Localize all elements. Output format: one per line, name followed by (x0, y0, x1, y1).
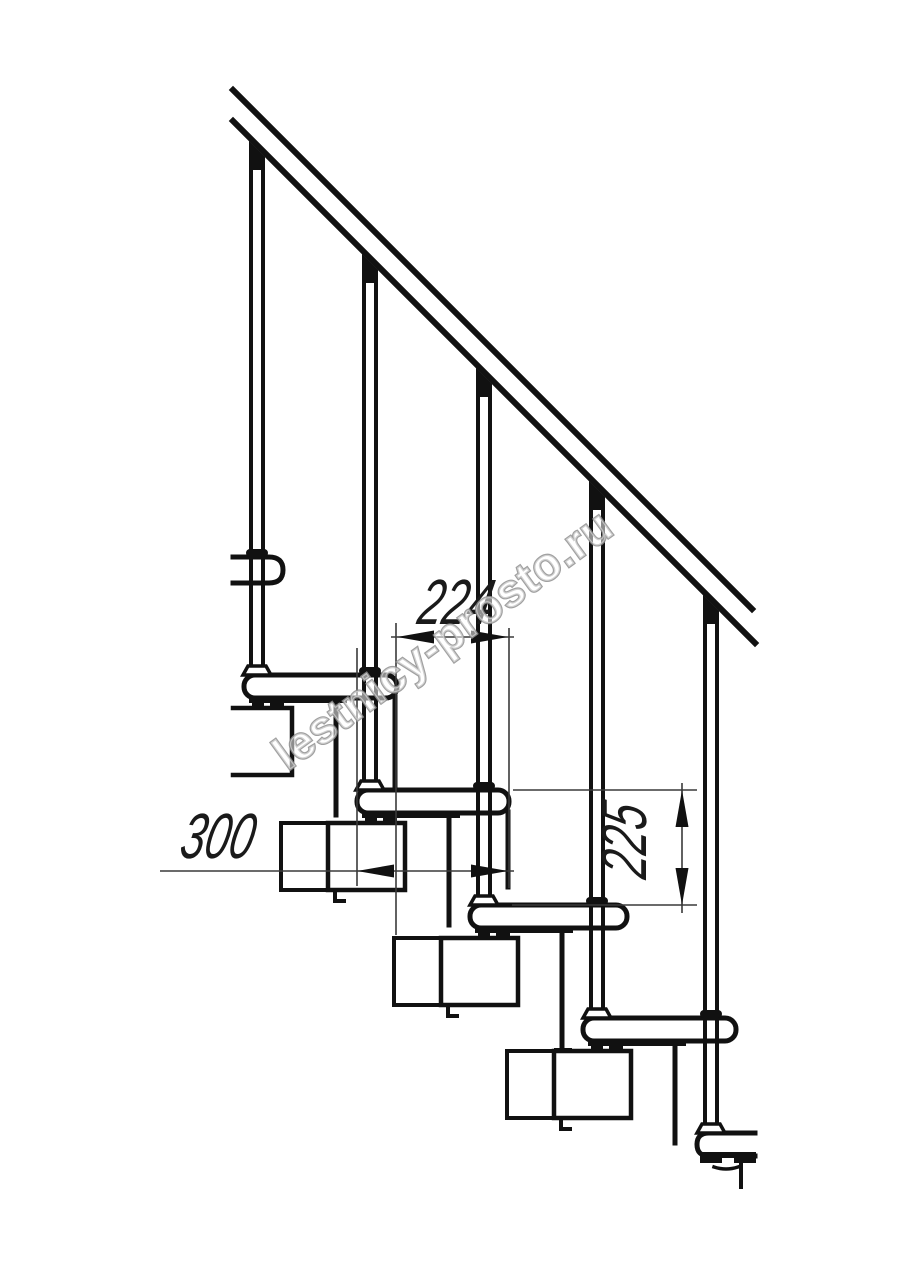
baluster-1 (243, 141, 271, 675)
tread-1-partial (233, 557, 283, 583)
tread-3 (357, 790, 509, 813)
dimension-300-label: 300 (175, 800, 263, 871)
dimension-225-label: 225 (588, 795, 659, 884)
staircase-side-view-drawing: 224 300 225 lestnicy-prosto.ru (0, 0, 914, 1280)
handrail (233, 90, 755, 643)
technical-drawing-page: 224 300 225 lestnicy-prosto.ru (0, 0, 914, 1280)
watermark-text: lestnicy-prosto.ru (263, 499, 622, 780)
tread-5 (583, 1018, 736, 1041)
baluster-5 (697, 595, 725, 1133)
